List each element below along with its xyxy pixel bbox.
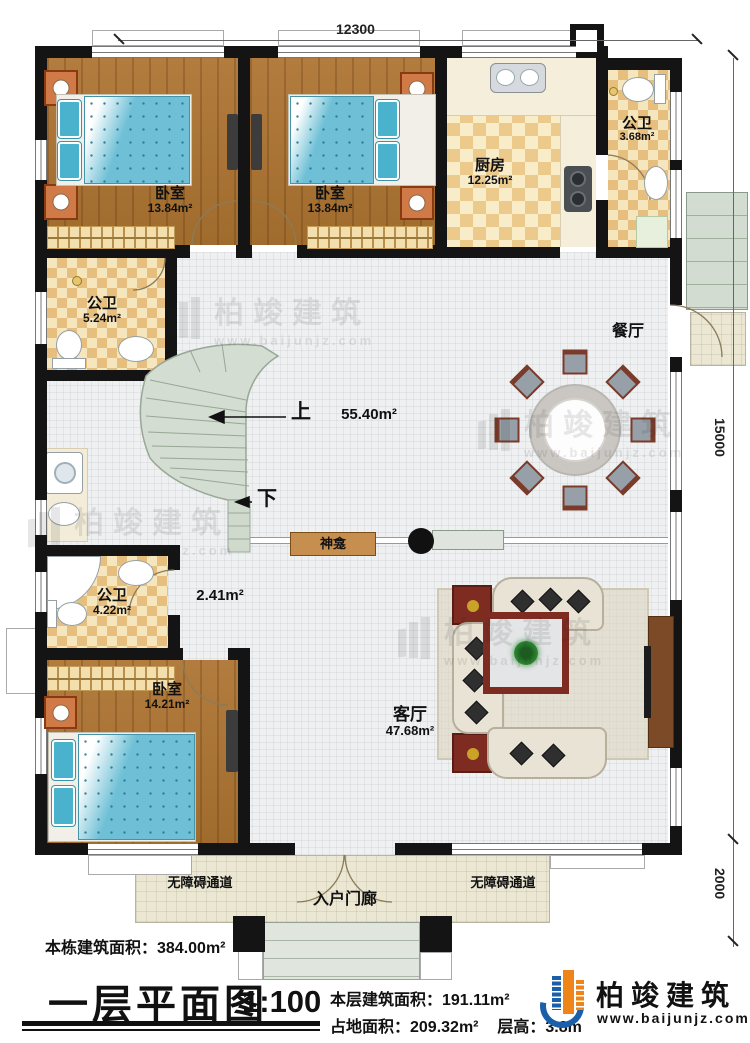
porch-column (420, 916, 452, 952)
scale-text: 1:100 (242, 984, 321, 1020)
floor-area-text: 本层建筑面积：191.11m² (330, 986, 510, 1010)
bath-top-label: 公卫 3.68m² (606, 116, 668, 143)
hall-area-label: 55.40m² (326, 407, 412, 423)
bed-pillow (52, 786, 75, 826)
title-underline-thin (22, 1029, 320, 1031)
toilet-tank (47, 600, 57, 628)
title-underline-thick (22, 1021, 320, 1026)
basin (118, 560, 154, 586)
kitchen-sink (490, 63, 546, 93)
toilet-tank (654, 74, 666, 104)
toilet (56, 330, 82, 360)
basin (118, 336, 154, 362)
toilet (622, 77, 654, 102)
dimension-porch-value: 2000 (712, 868, 728, 899)
living-label: 客厅 47.68m² (360, 706, 460, 737)
dimension-line-top (118, 40, 698, 41)
bedroom2-label: 卧室 13.84m² (280, 186, 380, 214)
stair-fan (140, 344, 278, 500)
bed-pillow (58, 100, 81, 138)
sofa (487, 727, 607, 779)
bed-mattress (78, 734, 195, 840)
bed-pillow (376, 100, 399, 138)
bed-pillow (376, 142, 399, 180)
bath-low-label: 公卫 4.22m² (72, 588, 152, 616)
ramp-left-label: 无障碍通道 (145, 876, 255, 890)
company-logo-icon (540, 968, 592, 1034)
entry-steps (263, 922, 420, 980)
dining-table (529, 384, 621, 476)
tv (644, 646, 651, 718)
tv (226, 710, 238, 772)
dimension-right-value: 15000 (712, 418, 728, 457)
wardrobe (307, 226, 433, 249)
footprint-text: 占地面积：209.32m² (330, 1019, 479, 1036)
bed-pillow (52, 740, 75, 780)
dining-chair (563, 486, 588, 511)
tv-cabinet (648, 616, 674, 748)
bedroom3-label: 卧室 14.21m² (112, 682, 222, 710)
nightstand (44, 696, 77, 729)
ramp-right-label: 无障碍通道 (448, 876, 558, 890)
door-arcs (129, 155, 722, 902)
dining-chair (563, 350, 588, 375)
total-area-text: 本栋建筑面积：384.00m² (45, 934, 226, 958)
company-logo-name: 柏竣建筑 (596, 974, 736, 1014)
company-logo-url: www.baijunjz.com (597, 1010, 750, 1026)
porch-column (233, 916, 265, 952)
dining-chair (495, 418, 520, 443)
lamp (72, 276, 82, 286)
basin (644, 166, 668, 200)
side-table (452, 733, 492, 773)
kitchen-label: 厨房 12.25m² (440, 158, 540, 186)
tv (227, 114, 238, 170)
wardrobe (47, 226, 175, 249)
dining-chair (631, 418, 656, 443)
dimension-line-porch (733, 843, 734, 947)
entry-steps-edge-right (420, 952, 452, 980)
bedroom1-label: 卧室 13.84m² (120, 186, 220, 214)
bath-mid-label: 公卫 5.24m² (62, 296, 142, 324)
porch-label: 入户门廊 (288, 892, 402, 909)
nightstand (44, 184, 78, 220)
bed-mattress (84, 96, 190, 184)
shower-tray (636, 216, 668, 248)
shower-valve (609, 87, 618, 96)
stove (564, 166, 592, 212)
dining-label: 餐厅 (588, 324, 668, 341)
stairs-down-label: 下 (254, 489, 280, 510)
floor-plan-sheet: 神龛 (0, 0, 750, 1043)
coffee-table (483, 612, 569, 694)
dimension-line-right (733, 58, 734, 843)
toilet-tank (52, 358, 86, 369)
stairs-up-label: 上 (288, 402, 314, 423)
bed-pillow (58, 142, 81, 180)
bed-mattress (290, 96, 374, 184)
tv (251, 114, 262, 170)
dimension-top-value: 12300 (336, 21, 375, 37)
corridor-area-label: 2.41m² (182, 588, 258, 604)
nightstand (400, 186, 434, 220)
